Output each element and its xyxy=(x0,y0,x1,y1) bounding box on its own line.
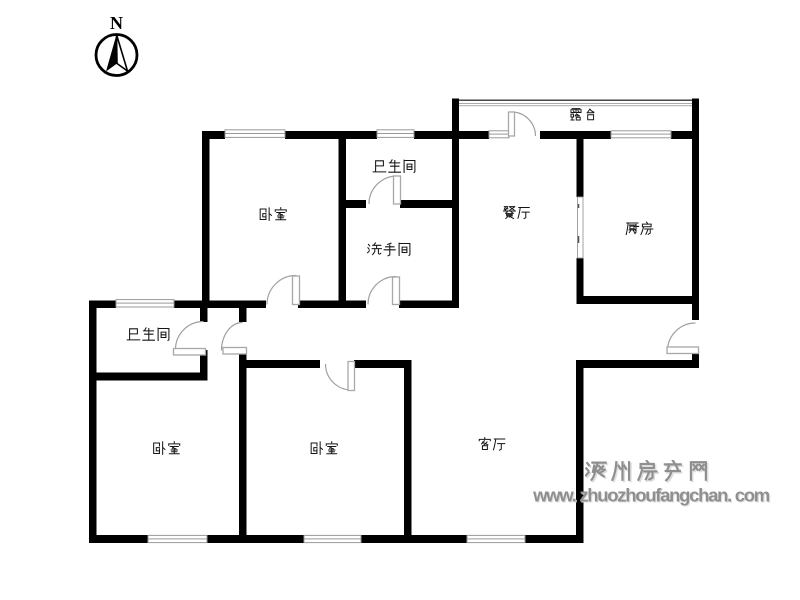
svg-text:N: N xyxy=(110,13,123,33)
svg-text:www. zhuozhoufangchan. com: www. zhuozhoufangchan. com xyxy=(532,485,770,506)
